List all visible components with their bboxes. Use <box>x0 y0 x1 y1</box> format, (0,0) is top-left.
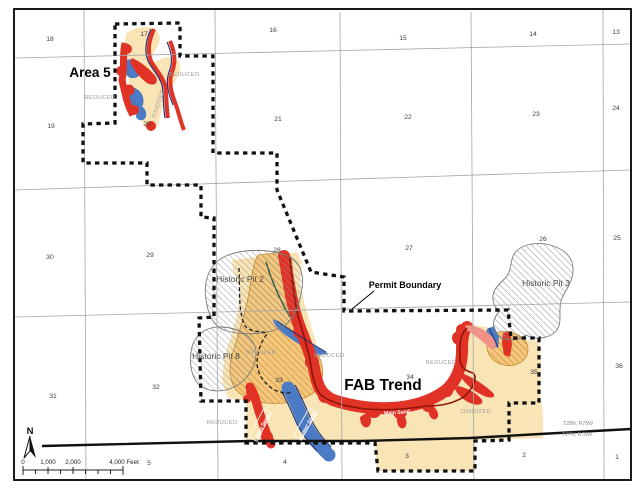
area5-label: Area 5 <box>69 65 111 80</box>
section-number-31: 31 <box>49 393 57 400</box>
mine-permit-map: 1817161514131920212223243029282726253132… <box>0 0 642 496</box>
reduced-zone-label: REDUCED <box>84 95 115 101</box>
section-number-14: 14 <box>529 31 537 38</box>
fab-trend-label: FAB Trend <box>344 377 422 394</box>
oxidized-zone-label: OXIDIZED <box>246 350 276 356</box>
reduced-zone-label: REDUCED <box>425 360 456 366</box>
section-number-2: 2 <box>522 452 526 459</box>
section-number-21: 21 <box>274 116 282 123</box>
township-north-label: T28N, R78W <box>563 421 593 427</box>
scale-1000-label: 1,000 <box>40 459 56 466</box>
oxidized-zone-label: OXIDIZED <box>461 409 491 415</box>
section-number-18: 18 <box>46 36 54 43</box>
section-number-27: 27 <box>405 245 413 252</box>
section-number-29: 29 <box>146 252 154 259</box>
section-number-3: 3 <box>405 453 409 460</box>
section-number-25: 25 <box>613 235 621 242</box>
section-number-23: 23 <box>532 111 540 118</box>
section-number-35: 35 <box>530 369 538 376</box>
section-number-17: 17 <box>140 31 148 38</box>
section-number-16: 16 <box>269 27 277 34</box>
section-number-30: 30 <box>46 254 54 261</box>
reduced-zone-label: REDUCED <box>313 353 344 359</box>
permit-boundary-label: Permit Boundary <box>369 280 442 290</box>
scale-2000-label: 2,000 <box>65 459 81 466</box>
section-number-32: 32 <box>152 384 160 391</box>
township-south-label: T27N, R78W <box>562 432 592 438</box>
reduced-zone-label: REDUCED <box>206 420 237 426</box>
north-arrow-label: N <box>27 426 34 437</box>
section-number-28: 28 <box>273 247 281 254</box>
historic-pit-3-label: Historic Pit 3 <box>522 278 570 288</box>
section-number-5: 5 <box>147 460 151 467</box>
section-number-24: 24 <box>612 105 620 112</box>
section-number-20: 20 <box>143 121 151 128</box>
map-root: 1817161514131920212223243029282726253132… <box>0 0 642 496</box>
scale-0-label: 0 <box>21 459 25 466</box>
section-number-26: 26 <box>539 236 547 243</box>
section-number-33: 33 <box>275 377 283 384</box>
historic-pit-2-label: Historic Pit 2 <box>216 274 264 284</box>
section-number-4: 4 <box>283 459 287 466</box>
scale-4000-label: 4,000 Feet <box>109 459 139 466</box>
historic-pit-8-label: Historic Pit 8 <box>192 351 240 361</box>
section-number-22: 22 <box>404 114 412 121</box>
section-number-13: 13 <box>612 29 620 36</box>
section-number-36: 36 <box>615 363 623 370</box>
section-number-1: 1 <box>615 454 619 461</box>
section-number-19: 19 <box>47 123 55 130</box>
historic-pit-2-outline <box>205 250 302 333</box>
section-number-15: 15 <box>399 35 407 42</box>
reduced-zone-label: REDUCED <box>168 72 199 78</box>
